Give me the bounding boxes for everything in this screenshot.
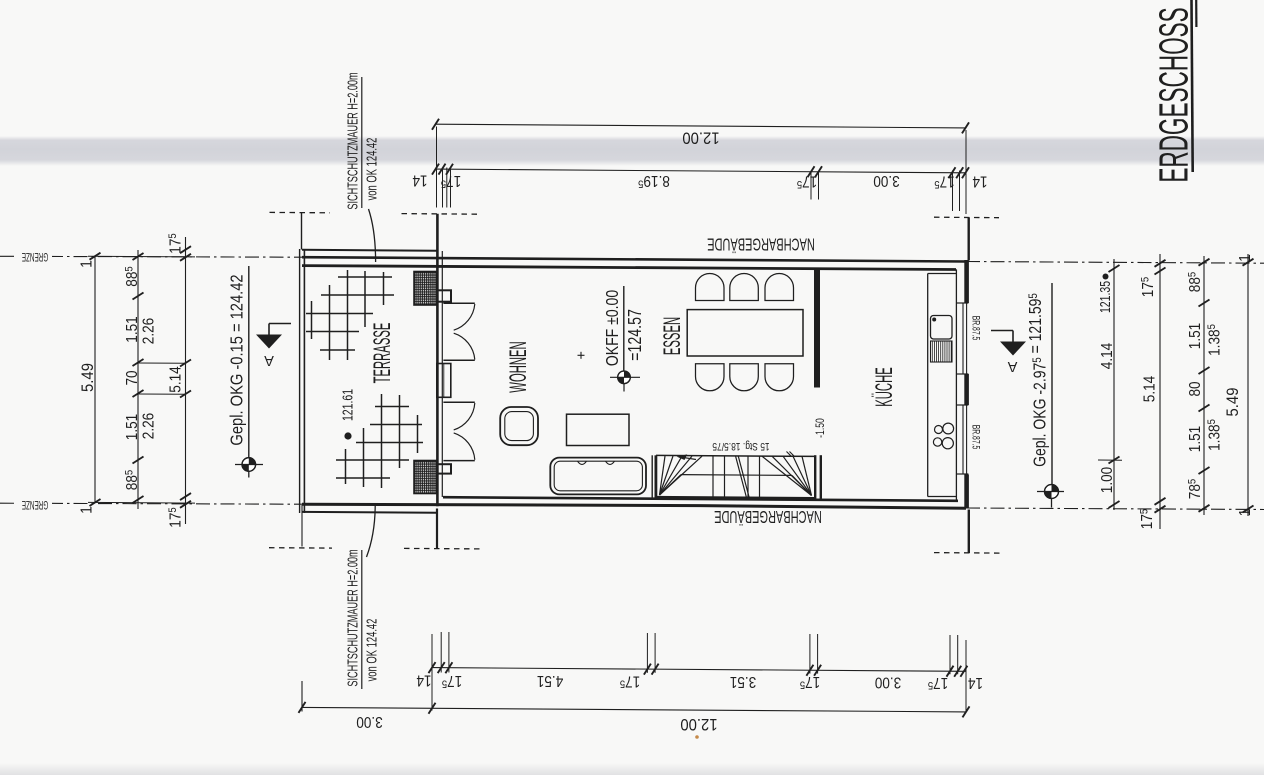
svg-text:3.51: 3.51: [730, 672, 756, 689]
svg-text:175: 175: [928, 673, 949, 690]
svg-text:5.14: 5.14: [1141, 376, 1158, 402]
svg-text:Gepl. OKG -0.15 = 124.42: Gepl. OKG -0.15 = 124.42: [227, 274, 246, 445]
svg-text:5.49: 5.49: [79, 363, 97, 392]
svg-text:175: 175: [800, 673, 821, 690]
svg-text:BR.87.5: BR.87.5: [970, 425, 982, 450]
svg-text:1.51: 1.51: [124, 316, 141, 342]
svg-text:175: 175: [442, 672, 463, 689]
svg-text:1.00: 1.00: [1099, 467, 1116, 493]
svg-text:1.51: 1.51: [1187, 323, 1204, 349]
svg-text:2.26: 2.26: [140, 318, 157, 344]
svg-text:175: 175: [167, 233, 184, 254]
svg-text:3.00: 3.00: [875, 673, 901, 690]
svg-text:1.51: 1.51: [1187, 426, 1204, 452]
svg-text:BR.87.5: BR.87.5: [970, 316, 982, 341]
svg-text:175: 175: [1140, 277, 1157, 298]
svg-text:1: 1: [78, 506, 95, 514]
svg-text:WOHNEN: WOHNEN: [504, 341, 531, 392]
svg-text:12.00: 12.00: [680, 715, 717, 733]
svg-text:785: 785: [1187, 479, 1204, 500]
svg-text:8.195: 8.195: [638, 172, 670, 189]
svg-text:TERRASSE: TERRASSE: [368, 323, 395, 384]
svg-text:14: 14: [968, 673, 983, 690]
svg-text:SICHTSCHUTZMAUER H=2.00m: SICHTSCHUTZMAUER H=2.00m: [345, 549, 362, 686]
svg-text:GRENZE: GRENZE: [22, 497, 48, 511]
svg-text:175: 175: [620, 672, 641, 689]
svg-text:1: 1: [78, 260, 95, 268]
svg-text:3.00: 3.00: [356, 713, 382, 730]
svg-text:80: 80: [1187, 381, 1204, 396]
svg-text:1.385: 1.385: [1206, 324, 1223, 356]
svg-text:-1.50: -1.50: [815, 418, 827, 438]
svg-text:KÜCHE: KÜCHE: [870, 367, 897, 406]
svg-text:Gepl. OKG -2.975 = 121.595: Gepl. OKG -2.975 = 121.595: [1027, 293, 1050, 467]
svg-text:70: 70: [124, 370, 141, 385]
svg-text:885: 885: [1187, 272, 1204, 293]
svg-text:14: 14: [972, 172, 987, 189]
svg-text:15 Stg. 18.5/75: 15 Stg. 18.5/75: [712, 440, 770, 452]
svg-text:1.51: 1.51: [124, 414, 141, 440]
svg-text:175: 175: [1139, 509, 1156, 530]
svg-text:121.61: 121.61: [339, 389, 356, 421]
svg-text:2.26: 2.26: [140, 413, 157, 439]
svg-text:=124.57: =124.57: [625, 309, 645, 361]
svg-text:175: 175: [167, 507, 184, 528]
svg-text:von OK 124.42: von OK 124.42: [364, 137, 381, 200]
svg-text:A: A: [1007, 358, 1017, 374]
svg-text:175: 175: [934, 172, 955, 189]
svg-text:5.14: 5.14: [167, 366, 184, 392]
svg-text:175: 175: [797, 172, 818, 189]
svg-text:5.49: 5.49: [1224, 388, 1242, 417]
svg-text:4.14: 4.14: [1099, 343, 1116, 369]
svg-text:3.00: 3.00: [873, 172, 899, 189]
svg-text:OKFF ±0.00: OKFF ±0.00: [602, 290, 622, 366]
svg-text:14: 14: [416, 671, 431, 688]
svg-text:A: A: [264, 352, 274, 368]
svg-text:4.51: 4.51: [537, 672, 563, 689]
svg-text:SICHTSCHUTZMAUER H=2.00m: SICHTSCHUTZMAUER H=2.00m: [345, 72, 362, 209]
svg-text:von OK 124.42: von OK 124.42: [364, 618, 381, 681]
svg-text:1: 1: [1237, 509, 1254, 517]
svg-text:1.385: 1.385: [1206, 419, 1223, 451]
svg-text:121.35: 121.35: [1096, 281, 1113, 313]
svg-text:12.00: 12.00: [682, 128, 719, 146]
svg-text:ESSEN: ESSEN: [658, 317, 685, 355]
svg-text:NACHBARGEBÄUDE: NACHBARGEBÄUDE: [707, 234, 815, 254]
svg-text:GRENZE: GRENZE: [22, 249, 48, 263]
svg-text:1: 1: [1237, 254, 1254, 262]
svg-text:14: 14: [412, 171, 427, 188]
svg-text:NACHBARGEBÄUDE: NACHBARGEBÄUDE: [714, 506, 822, 526]
